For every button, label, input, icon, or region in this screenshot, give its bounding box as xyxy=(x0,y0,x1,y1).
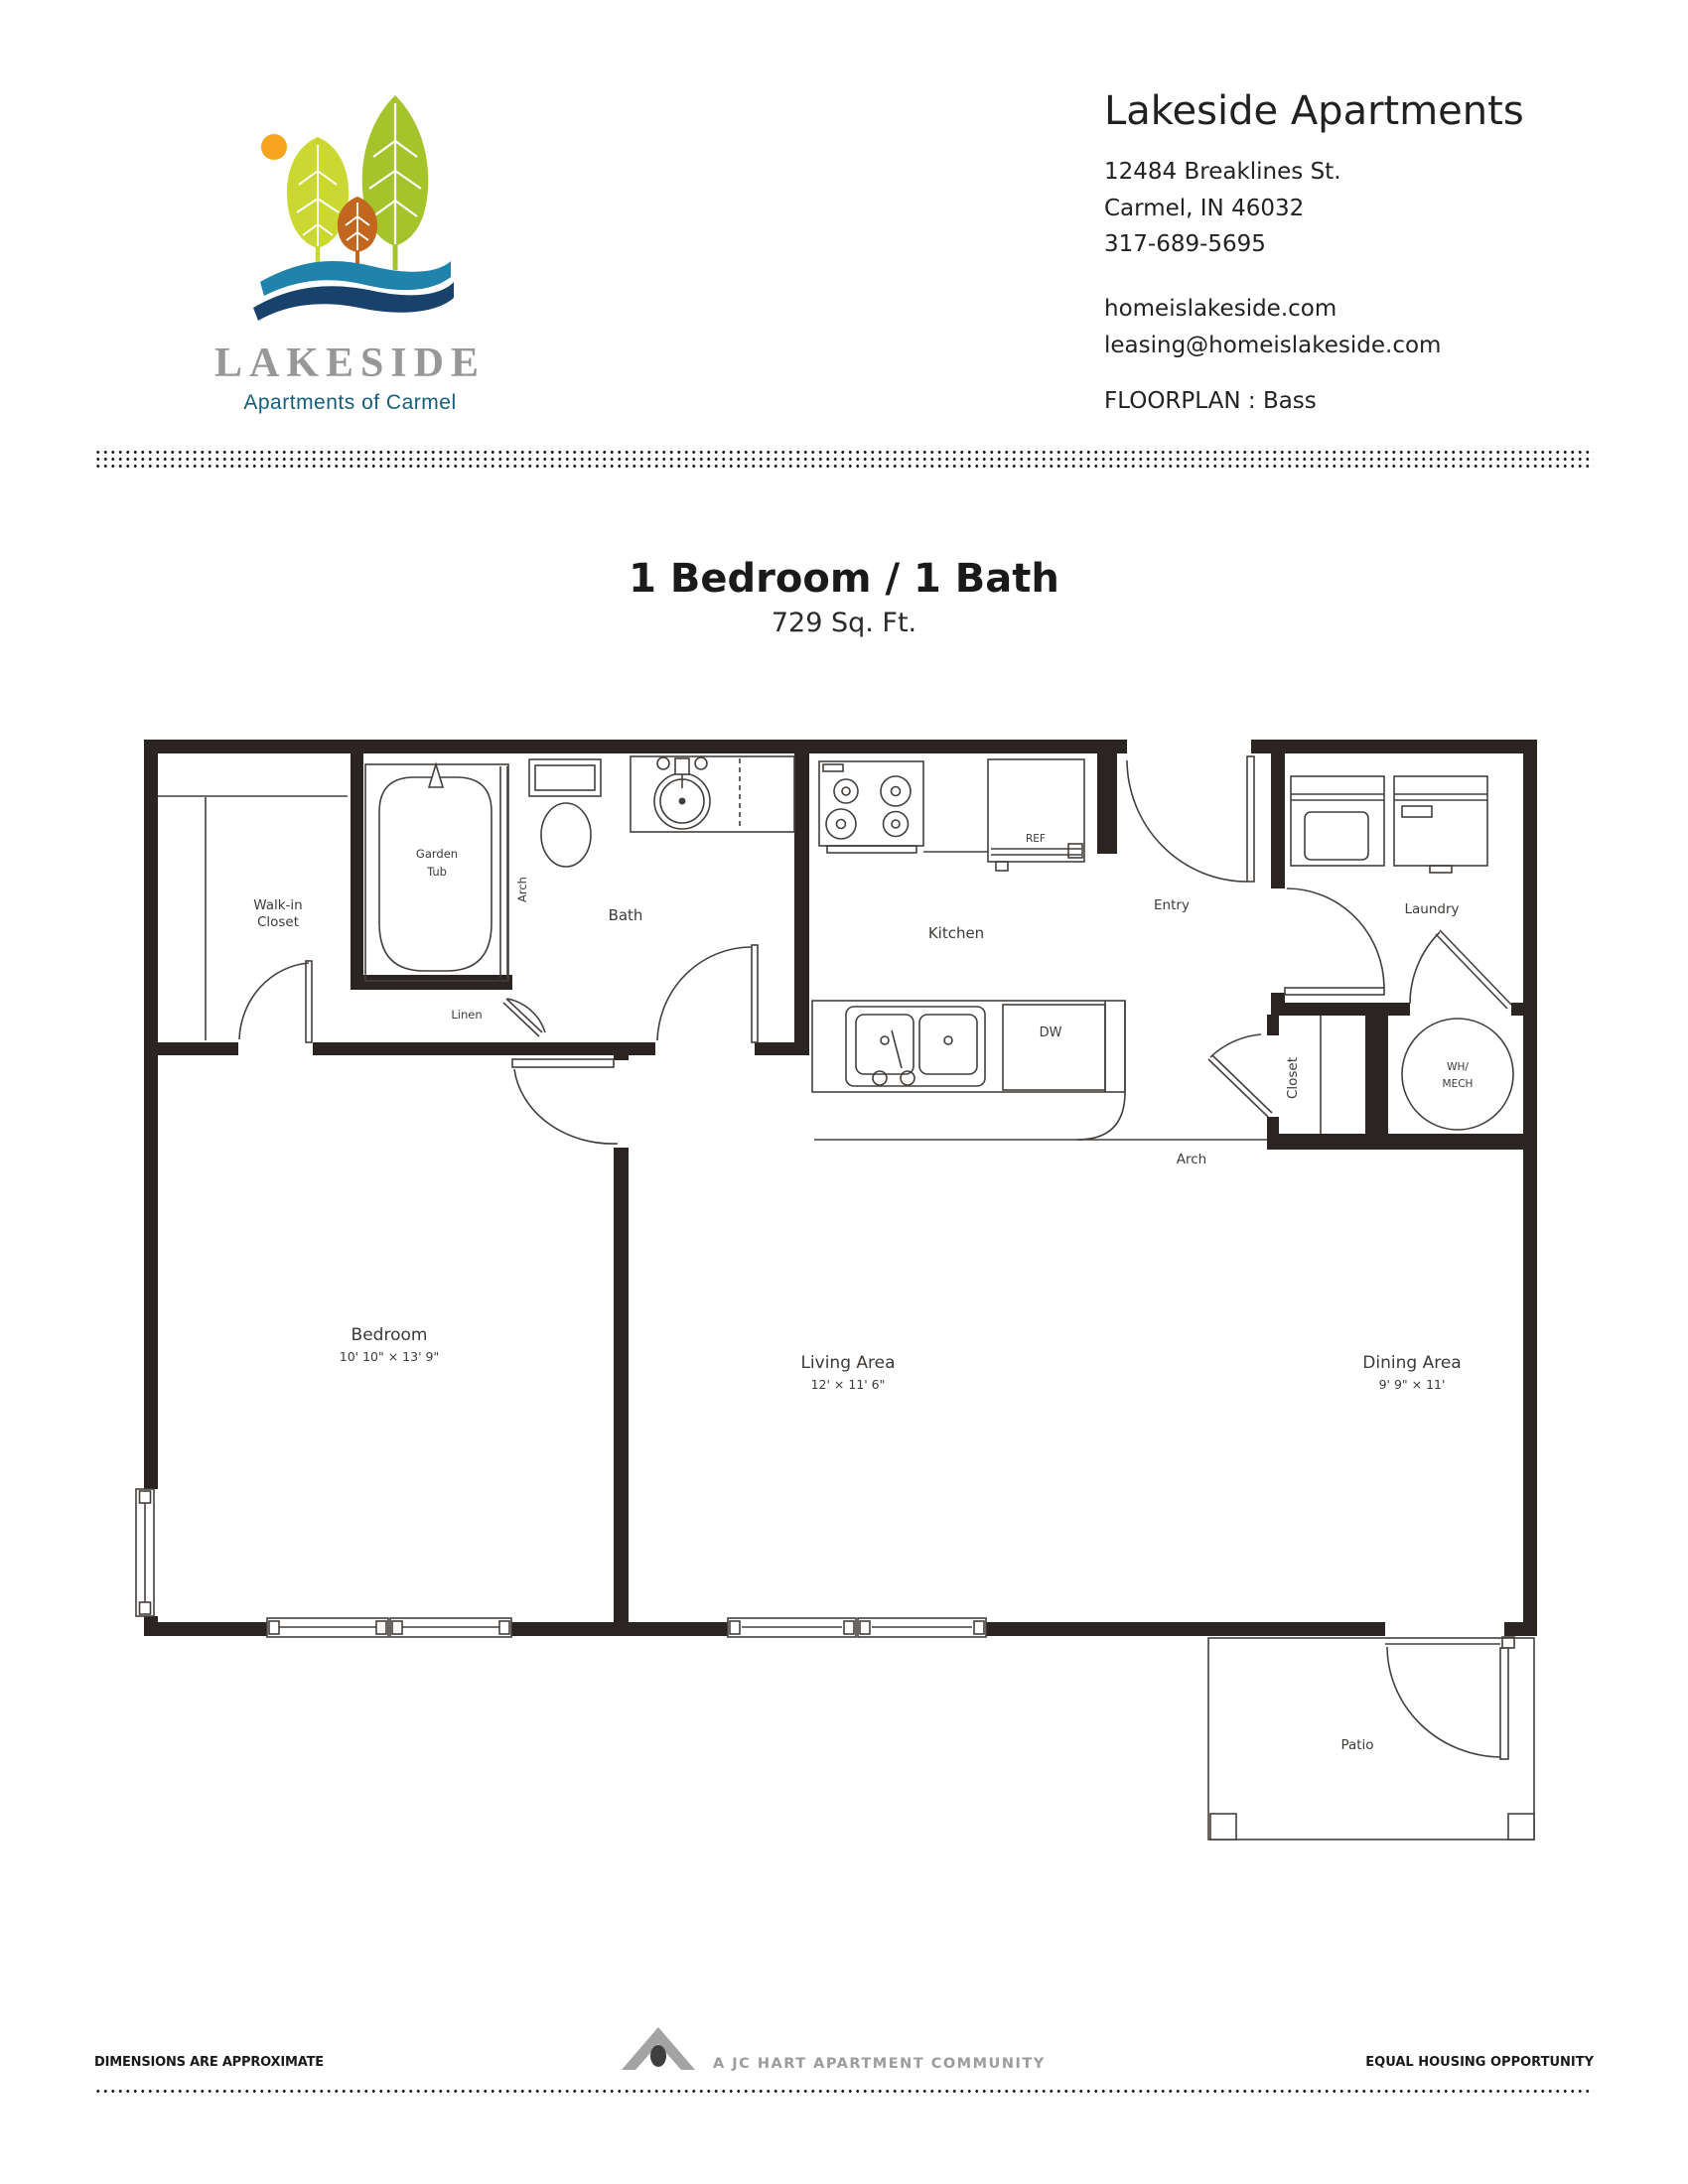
entry-door xyxy=(1127,756,1254,882)
phone-number: 317-689-5695 xyxy=(1104,226,1341,263)
brand-wordmark: LAKESIDE xyxy=(204,340,496,387)
washer xyxy=(1291,776,1384,866)
equal-housing-label: EQUAL HOUSING OPPORTUNITY xyxy=(1365,2055,1594,2070)
brand-tagline: Apartments of Carmel xyxy=(204,391,496,415)
walkin-label-2: Closet xyxy=(257,914,299,930)
page-title: Lakeside Apartments xyxy=(1104,87,1524,135)
floorplan-label: FLOORPLAN : xyxy=(1104,388,1256,414)
jchart-community-label: A JC HART APARTMENT COMMUNITY xyxy=(713,2056,1046,2072)
stove xyxy=(819,761,988,853)
dishwasher xyxy=(1003,1005,1105,1090)
kitchen-sink xyxy=(846,1007,985,1086)
hall-closet-door xyxy=(1208,1034,1272,1117)
refrigerator xyxy=(988,759,1084,871)
laundry-door xyxy=(1285,888,1384,995)
plan-heading: 1 Bedroom / 1 Bath xyxy=(94,556,1594,602)
toilet xyxy=(529,759,601,867)
living-dims: 12' × 11' 6" xyxy=(811,1377,886,1392)
floorplan-name: Bass xyxy=(1263,388,1317,414)
living-label: Living Area xyxy=(800,1353,895,1373)
address-line2: Carmel, IN 46032 xyxy=(1104,191,1341,227)
dw-label: DW xyxy=(1040,1025,1062,1040)
garden-tub-label-1: Garden xyxy=(416,847,458,861)
garden-tub-label-2: Tub xyxy=(426,865,447,879)
window-left-wall xyxy=(136,1489,154,1616)
dimensions-disclaimer: DIMENSIONS ARE APPROXIMATE xyxy=(94,2055,324,2070)
arch-bath-label: Arch xyxy=(515,877,529,902)
walls xyxy=(144,740,1537,1636)
entry-label: Entry xyxy=(1154,897,1190,913)
website-link[interactable]: homeislakeside.com xyxy=(1104,291,1441,328)
doors xyxy=(239,756,1514,1759)
water-heater xyxy=(1402,1019,1513,1130)
linen-door xyxy=(503,999,545,1036)
dotted-separator-bottom xyxy=(94,2088,1594,2095)
dryer xyxy=(1394,776,1487,873)
laundry-closet-door xyxy=(1410,930,1511,1009)
tree-tall-icon xyxy=(362,95,429,270)
address-block: 12484 Breaklines St. Carmel, IN 46032 31… xyxy=(1104,154,1341,263)
bath-vanity xyxy=(631,756,794,832)
closet-label: Closet xyxy=(1285,1057,1301,1099)
fixtures xyxy=(158,756,1534,1840)
floorplan-drawing: Walk-in Closet Garden Tub Linen Bath Kit… xyxy=(0,725,1688,1886)
patio-door xyxy=(1385,1637,1514,1759)
dotted-separator-top xyxy=(94,449,1594,470)
patio-label: Patio xyxy=(1340,1737,1373,1753)
email-link[interactable]: leasing@homeislakeside.com xyxy=(1104,328,1441,364)
linen-label: Linen xyxy=(451,1008,482,1022)
contact-block: homeislakeside.com leasing@homeislakesid… xyxy=(1104,291,1441,364)
tree-light-icon xyxy=(287,137,349,268)
tree-orange-icon xyxy=(338,197,377,266)
dining-label: Dining Area xyxy=(1362,1353,1461,1373)
window-bedroom xyxy=(267,1618,511,1637)
sun-icon xyxy=(261,134,287,160)
ref-label: REF xyxy=(1026,833,1046,845)
dining-dims: 9' 9" × 11' xyxy=(1379,1377,1446,1392)
walkin-label-1: Walk-in xyxy=(253,897,303,913)
bedroom-label: Bedroom xyxy=(352,1325,428,1345)
bedroom-dims: 10' 10" × 13' 9" xyxy=(340,1349,439,1364)
lakeside-logo-icon xyxy=(238,79,467,328)
walkin-shelf-lines xyxy=(158,796,348,1040)
whmech-label-2: MECH xyxy=(1443,1078,1474,1090)
address-line1: 12484 Breaklines St. xyxy=(1104,154,1341,191)
floorplan-id-line: FLOORPLAN : Bass xyxy=(1104,388,1317,414)
kitchen-counter xyxy=(812,1001,1267,1140)
walkin-closet-door xyxy=(239,961,312,1042)
plan-square-footage: 729 Sq. Ft. xyxy=(94,608,1594,638)
bath-label: Bath xyxy=(609,906,643,924)
bedroom-door xyxy=(512,1059,618,1144)
laundry-label: Laundry xyxy=(1404,901,1459,917)
windows xyxy=(136,1489,986,1637)
flyer-page: LAKESIDE Apartments of Carmel Lakeside A… xyxy=(0,0,1688,2184)
bath-door xyxy=(657,945,758,1042)
window-living xyxy=(728,1618,986,1637)
kitchen-label: Kitchen xyxy=(928,924,984,942)
jchart-house-icon xyxy=(616,2023,705,2075)
whmech-label-1: WH/ xyxy=(1447,1061,1469,1073)
arch-hall-label: Arch xyxy=(1177,1152,1206,1167)
